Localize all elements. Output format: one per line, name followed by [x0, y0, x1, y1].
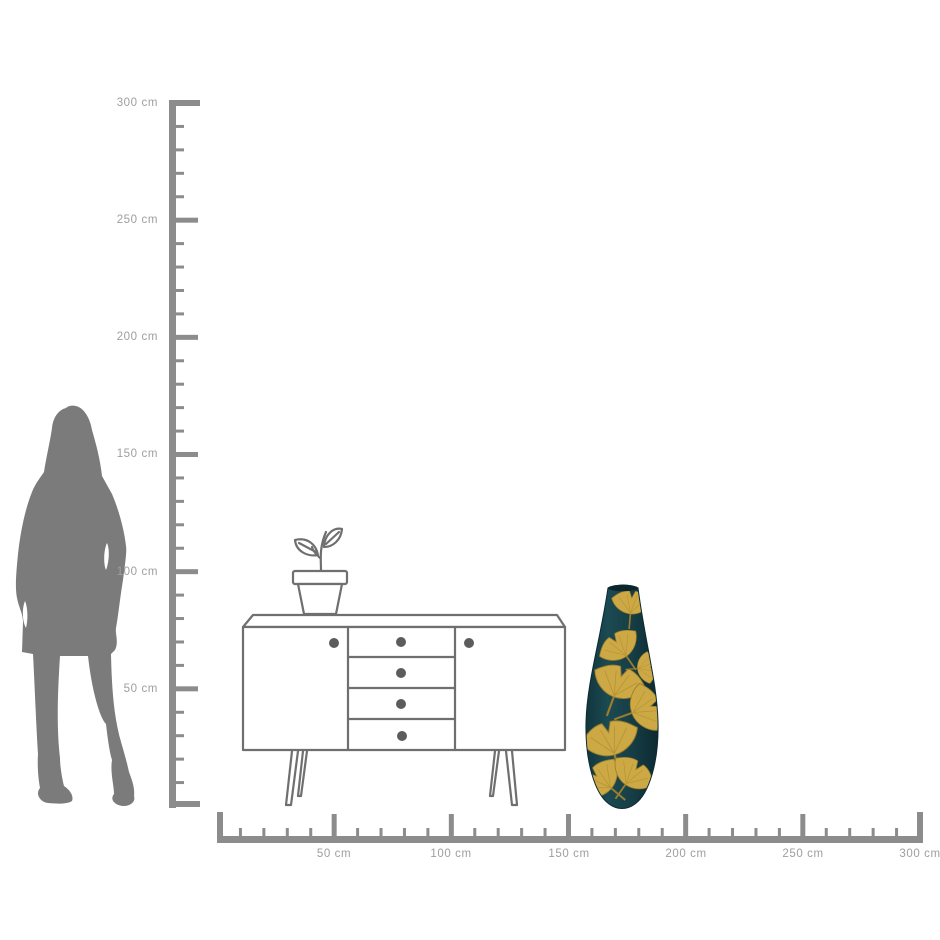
horizontal-ruler-label: 50 cm [302, 847, 366, 861]
vertical-ruler-label: 200 cm [106, 330, 158, 344]
vertical-ruler-label: 150 cm [106, 447, 158, 461]
horizontal-ruler-label: 250 cm [771, 847, 835, 861]
size-comparison-diagram: 300 cm 250 cm 200 cm 150 cm 100 cm 50 cm… [0, 0, 940, 940]
vertical-ruler-label: 50 cm [106, 682, 158, 696]
vertical-ruler-label: 250 cm [106, 213, 158, 227]
vertical-ruler-label: 300 cm [106, 96, 158, 110]
vertical-ruler-label: 100 cm [106, 565, 158, 579]
horizontal-ruler-label: 200 cm [654, 847, 718, 861]
horizontal-ruler-label: 100 cm [419, 847, 483, 861]
horizontal-ruler-label: 300 cm [888, 847, 940, 861]
horizontal-ruler-label: 150 cm [537, 847, 601, 861]
measurement-rulers [0, 0, 940, 940]
